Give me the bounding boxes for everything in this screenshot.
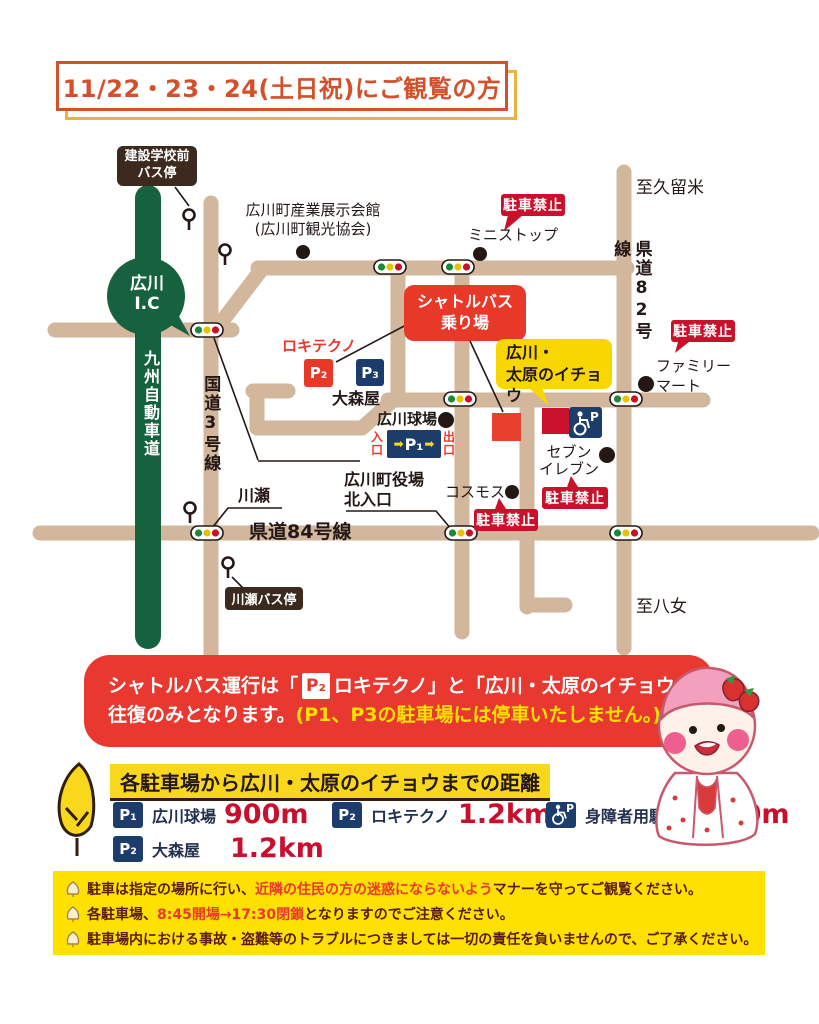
no-parking-badge: 駐車禁止	[671, 320, 735, 342]
banner-line2-yellow: (P1、P3の駐車場には停車いたしません。)	[296, 701, 662, 730]
svg-text:P: P	[590, 410, 599, 424]
traffic-light-icon	[610, 392, 642, 406]
shuttle-info-banner: シャトルバス運行は「 P₂ ロキテクノ」と「広川・太原のイチョウ」の 往復のみと…	[84, 655, 714, 747]
kyushu-expressway-label: 九州自動車道	[138, 350, 162, 465]
bus-stop-icon	[184, 210, 195, 231]
no-parking-badge: 駐車禁止	[501, 194, 565, 216]
leaf-bullet-icon	[65, 881, 81, 898]
distance-name: 大森屋	[152, 837, 200, 861]
title-banner: 11/22・23・24(土日祝)にご観覧の方	[56, 61, 508, 111]
no-parking-badge: 駐車禁止	[542, 487, 608, 509]
icho-location-square	[542, 408, 569, 434]
distance-item: P₂ ロキテクノ 1.2km	[332, 802, 552, 828]
p1-chip: P₁	[113, 802, 143, 828]
page-title: 11/22・23・24(土日祝)にご観覧の方	[63, 69, 502, 104]
cosmos-label: コスモス	[445, 483, 505, 502]
accessible-parking-chip: P	[546, 802, 576, 828]
traffic-light-icon	[444, 392, 476, 406]
entrance-label: 入口	[371, 431, 385, 457]
banner-p2-chip: P₂	[302, 673, 330, 699]
notice-text: 駐車は指定の場所に行い、	[87, 882, 255, 898]
arrow-icon: ➡	[424, 437, 434, 451]
notice-text: 駐車場内における事故・盗難等のトラブルにつきましては一切の責任を負いませんので、…	[87, 932, 757, 948]
traffic-light-icon	[442, 260, 474, 274]
traffic-light-icon	[191, 526, 223, 540]
notice-text-em: 8:45開場→17:30閉鎖	[157, 907, 304, 923]
distance-item: P₂ 大森屋 1.2km	[113, 836, 324, 862]
kensetsu-bus-stop-badge: 建設学校前 バス停	[117, 146, 197, 186]
notice-text: 各駐車場、	[87, 907, 157, 923]
banner-line2-white: 往復のみとなります。	[108, 701, 296, 730]
shuttle-bus-stop-badge: シャトルバス 乗り場	[404, 285, 526, 341]
leaf-bullet-icon	[65, 906, 81, 923]
hirokawa-ic-label: 広川 I.C	[108, 274, 186, 315]
ministop-label: ミニストップ	[468, 226, 558, 245]
traffic-light-icon	[191, 323, 223, 337]
distance-heading: 各駐車場から広川・太原のイチョウまでの距離	[110, 764, 550, 801]
familymart-label: ファミリー マート	[656, 356, 731, 397]
ballpark-label: 広川球場	[377, 410, 437, 429]
title-box: 11/22・23・24(土日祝)にご観覧の方	[56, 61, 508, 111]
accessible-chip-p: P	[566, 802, 574, 815]
kendo82-label: 県道82号線	[609, 240, 652, 355]
p2-chip: P₂	[113, 836, 143, 862]
distance-value: 900m	[224, 802, 309, 828]
traffic-light-icon	[445, 526, 477, 540]
traffic-light-icon	[610, 526, 642, 540]
rokitechno-label: ロキテクノ	[282, 337, 356, 356]
seven-eleven-label: セブン イレブン	[536, 444, 602, 479]
kawase-label: 川瀬	[238, 486, 270, 506]
p1-label: P₁	[405, 435, 424, 454]
exhibition-hall-label: 広川町産業展示会館 (広川町観光協会)	[231, 201, 395, 239]
notice-text: マナーを守ってご観覧ください。	[493, 882, 702, 898]
leaf-bullet-icon	[65, 931, 81, 948]
p1-marker: ➡ P₁ ➡	[387, 430, 441, 458]
bus-stop-icon	[220, 245, 231, 266]
notice-line: 駐車場内における事故・盗難等のトラブルにつきましては一切の責任を負いませんので、…	[65, 928, 753, 953]
traffic-light-icon	[374, 260, 406, 274]
p3-marker: P₃	[356, 359, 384, 386]
ginkgo-tree-icon	[56, 760, 102, 860]
bus-stop-icon	[223, 558, 234, 579]
icho-badge: 広川・ 太原のイチョウ	[496, 339, 612, 389]
notice-text: となりますのでご注意ください。	[304, 907, 514, 923]
p2-marker: P₂	[304, 359, 333, 387]
notice-line: 駐車は指定の場所に行い、近隣の住民の方の迷惑にならないようマナーを守ってご観覧く…	[65, 878, 753, 903]
bus-stop-icon	[185, 503, 196, 524]
arrow-icon: ➡	[394, 437, 404, 451]
to-kurume-label: 至久留米	[636, 178, 704, 199]
accessible-parking-icon: P	[569, 407, 602, 438]
flyer-page: P 11/22・23・24(土日祝)にご観覧の方	[0, 0, 819, 1024]
strawberry-mascot	[645, 658, 770, 853]
distance-item: P₁ 広川球場 900m	[113, 802, 309, 828]
shuttle-stop-square	[492, 413, 521, 441]
distance-value: 1.2km	[458, 802, 552, 828]
notice-line: 各駐車場、8:45開場→17:30閉鎖となりますのでご注意ください。	[65, 903, 753, 928]
yakuba-kitaguchi-label: 広川町役場 北入口	[344, 470, 424, 510]
distance-value: 1.2km	[230, 836, 324, 862]
kokudo3-label: 国道3号線	[199, 375, 220, 480]
distance-name: 広川球場	[152, 803, 216, 827]
kawase-bus-stop-badge: 川瀬バス停	[225, 587, 303, 610]
notice-box: 駐車は指定の場所に行い、近隣の住民の方の迷惑にならないようマナーを守ってご観覧く…	[53, 871, 765, 955]
exit-label: 出口	[443, 431, 457, 457]
p2-chip: P₂	[332, 802, 362, 828]
kendo84-label: 県道84号線	[249, 521, 351, 545]
no-parking-badge: 駐車禁止	[474, 509, 538, 531]
distance-name: ロキテクノ	[371, 803, 450, 827]
omoriya-label: 大森屋	[332, 389, 380, 409]
to-yame-label: 至八女	[636, 597, 687, 618]
notice-text-em: 近隣の住民の方の迷惑にならないよう	[255, 882, 493, 898]
banner-line1-pre: シャトルバス運行は「	[108, 672, 298, 701]
